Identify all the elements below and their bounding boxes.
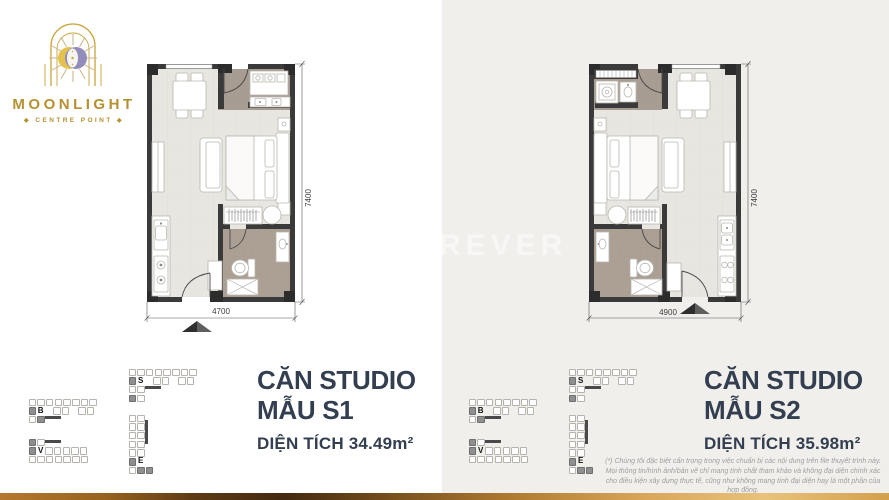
s1-width-dim-label: 4700 — [212, 307, 230, 316]
floor-plan-s1: 7400 4700 — [144, 58, 322, 350]
s2-entrance-marker — [680, 303, 710, 314]
s2-sofa — [662, 138, 684, 192]
key-plan-tower-e: E — [568, 414, 594, 475]
s2-kitchen — [718, 216, 736, 296]
s2-side-table — [608, 206, 626, 224]
key-plan-tower-s: S — [128, 368, 198, 403]
s1-side-table — [263, 206, 281, 224]
key-plan-tower-v: V — [468, 438, 529, 464]
key-plans-s1: S B V E — [24, 364, 236, 490]
s2-width-dim-label: 4900 — [659, 308, 677, 317]
s2-wardrobe — [724, 142, 736, 192]
s1-dimension-height: 7400 — [295, 61, 313, 305]
s2-shoe-cabinet — [667, 263, 681, 291]
s1-window — [166, 65, 212, 69]
s1-hanger-closet — [224, 207, 262, 224]
s2-window — [672, 65, 720, 69]
plan-s2-name-line1: CĂN STUDIO — [704, 365, 863, 395]
plan-s1-name-line1: CĂN STUDIO — [257, 365, 416, 395]
logo-title: MOONLIGHT — [8, 96, 140, 113]
floor-plan-s2: 7400 4900 — [584, 58, 762, 350]
key-plan-tower-v: V — [28, 438, 89, 464]
moon-arch-icon — [8, 6, 140, 90]
s2-height-dim-label: 7400 — [750, 189, 759, 207]
key-plan-tower-b: B — [28, 398, 98, 424]
brand-logo: MOONLIGHT ◆ CENTRE POINT ◆ — [8, 6, 140, 124]
s2-laundry-closet — [596, 71, 636, 104]
s1-dimension-width: 4700 — [145, 302, 298, 322]
s2-hanger-closet — [628, 207, 660, 224]
s1-height-dim-label: 7400 — [304, 189, 313, 207]
plan-s2-name-line2: MẪU S2 — [704, 395, 863, 425]
logo-subtitle: ◆ CENTRE POINT ◆ — [8, 116, 140, 124]
s1-laundry-closet — [250, 71, 290, 107]
s1-kitchen — [152, 216, 170, 296]
footer-gold-bar — [0, 493, 889, 500]
key-plan-tower-s: S — [568, 368, 638, 403]
key-plan-tower-e: E — [128, 414, 154, 475]
s2-dimension-width: 4900 — [587, 302, 744, 322]
plan-title-s2: CĂN STUDIO MẪU S2 DIỆN TÍCH 35.98m² — [704, 365, 863, 454]
plan-title-s1: CĂN STUDIO MẪU S1 DIỆN TÍCH 34.49m² — [257, 365, 416, 454]
s1-wardrobe — [152, 142, 164, 192]
plan-s1-name-line2: MẪU S1 — [257, 395, 416, 425]
plan-s1-area: DIỆN TÍCH 34.49m² — [257, 434, 416, 454]
s1-sofa — [200, 138, 222, 192]
s1-entrance-marker — [182, 321, 212, 332]
s2-dimension-height: 7400 — [741, 61, 759, 305]
watermark: R REVER — [383, 224, 567, 268]
watermark-text: REVER — [439, 229, 567, 263]
brochure-page: R REVER MOONLIGHT ◆ CENTRE POINT ◆ — [0, 0, 889, 500]
plan-s2-area: DIỆN TÍCH 35.98m² — [704, 434, 863, 454]
watermark-logo-icon: R — [383, 224, 427, 268]
key-plan-tower-b: B — [468, 398, 538, 424]
disclaimer-text: (*) Chúng tôi đặc biệt cẩn trọng trong v… — [601, 457, 885, 496]
